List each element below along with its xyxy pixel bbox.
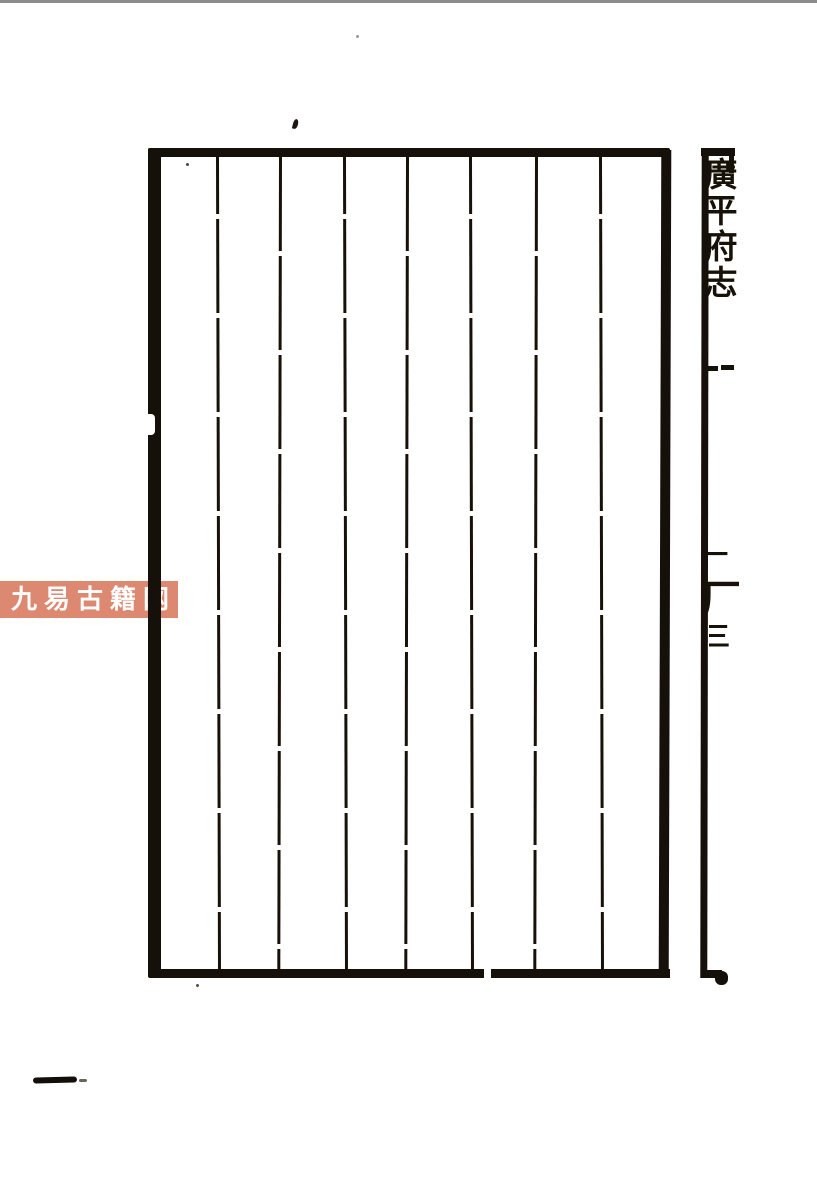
- spine-divider-mark: [721, 365, 734, 370]
- spine-title-text: 廣平府志: [707, 157, 735, 301]
- column-line: [469, 157, 474, 969]
- scan-top-edge: [0, 0, 817, 3]
- spine-bottom-ink-blob: [715, 971, 728, 985]
- spine-lower-mark: 厂: [707, 578, 743, 624]
- spine-lower-mark: 三: [709, 622, 737, 654]
- ink-speck: [196, 984, 199, 987]
- ink-smudge: [79, 1079, 87, 1082]
- page-frame-left-border: [148, 148, 161, 978]
- scanned-book-page: 廣平府志 一 厂 三 九易古籍网: [0, 0, 817, 1200]
- spine-title: 廣平府志: [707, 157, 745, 309]
- column-line: [599, 157, 604, 969]
- page-frame-bottom-border: [150, 969, 670, 978]
- page-frame-right-border: [659, 150, 672, 978]
- ink-speck: [356, 35, 359, 38]
- column-line: [277, 157, 282, 969]
- page-frame-top-border: [148, 148, 670, 157]
- spine-divider-mark: [707, 366, 718, 371]
- ink-speck: [292, 119, 299, 130]
- column-line: [404, 157, 409, 969]
- left-border-notch: [148, 414, 155, 435]
- column-line: [216, 157, 221, 969]
- spine-lower-mark: 一: [708, 545, 734, 567]
- column-line: [343, 157, 348, 969]
- column-line: [533, 157, 538, 969]
- ink-speck: [186, 163, 189, 166]
- ink-smudge: [33, 1076, 77, 1083]
- bottom-border-break: [484, 968, 491, 979]
